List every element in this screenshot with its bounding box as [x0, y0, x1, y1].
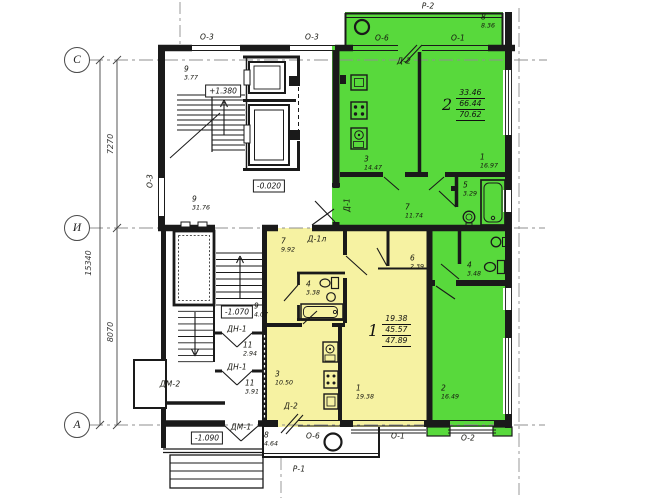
room-label-apt2-hall: 7 11.74	[405, 203, 423, 220]
room-label-lobby-2: 11 3.91	[245, 379, 259, 396]
room-label-apt1-balcony: 8 4.64	[264, 431, 278, 448]
room-label-apt1-hall: 7 9.92	[281, 237, 295, 254]
apartment-1-areas: 19.38 45.57 47.89	[382, 314, 410, 347]
room-label-apt2-balcony: 8 8.36	[481, 13, 495, 30]
room-label-apt1-closet: 6 2.39	[410, 254, 424, 271]
window-mark-o6-bottom: О-6	[306, 432, 320, 440]
floor-plan-drawing	[0, 0, 650, 500]
room-label-apt2-kitchen: 3 14.47	[364, 155, 382, 172]
window-mark-o1-top: О-1	[451, 34, 465, 42]
axis-row-c: С	[64, 47, 90, 73]
window-mark-o2-bottom: О-2	[461, 434, 475, 442]
window-mark-o1-bottom: О-1	[391, 432, 405, 440]
floor-plan: С И А 7270 15340 8070 О-3 О-3 О-3 Р-2 О-…	[0, 0, 650, 500]
room-label-lobby-1: 11 2.94	[243, 341, 257, 358]
apartment-fill-areas	[265, 12, 512, 436]
elevation-stair-landing: +1.380	[205, 85, 241, 98]
axis-row-a: А	[64, 412, 90, 438]
apartment-1-summary: 1 19.38 45.57 47.89	[368, 314, 411, 347]
balcony-mark-p1: Р-1	[293, 465, 306, 473]
dim-8070: 8070	[107, 322, 115, 342]
elevation-entrance: -1.090	[191, 432, 223, 445]
stairs-upper	[170, 92, 245, 158]
room-label-apt1-kitchen: 3 10.50	[275, 370, 293, 387]
room-label-apt1-bath: 4 3.38	[306, 280, 320, 297]
door-mark-dn1-b: ДН-1	[227, 363, 247, 371]
door-mark-d1l-yellow: Д-1л	[308, 235, 327, 243]
room-label-apt1-living: 1 19.38	[356, 384, 374, 401]
door-mark-dm2: ДМ-2	[160, 380, 181, 388]
window-mark-o6-top: О-6	[375, 34, 389, 42]
apartment-1-number: 1	[368, 321, 378, 340]
room-label-stair-lower: 9 4.07	[254, 302, 268, 319]
elevator-shaft	[243, 57, 300, 170]
door-mark-dm1: ДМ-1	[231, 423, 252, 431]
window-mark-o3-b: О-3	[305, 33, 319, 41]
elevation-lower-landing: -1.070	[221, 306, 253, 319]
window-mark-o3-left: О-3	[146, 174, 154, 188]
room-label-apt2-bedroom: 2 16.49	[441, 384, 459, 401]
axis-row-i: И	[64, 215, 90, 241]
door-mark-d1-green: Д-1	[343, 198, 351, 212]
dim-7270: 7270	[107, 134, 115, 154]
room-label-apt2-bath: 5 3.29	[463, 181, 477, 198]
apartment-2-number: 2	[442, 95, 452, 114]
dim-15340: 15340	[85, 250, 93, 275]
door-mark-dn1-a: ДН-1	[227, 325, 247, 333]
dimension-lines	[96, 56, 121, 429]
door-mark-d2-yellow: Д-2	[284, 402, 298, 410]
room-label-apt2-living: 1 16.97	[480, 153, 498, 170]
window-mark-o3-a: О-3	[200, 33, 214, 41]
door-mark-d2-green: Д-2	[397, 57, 411, 65]
elevation-ground: -0.020	[253, 180, 285, 193]
balcony-mark-p2: Р-2	[422, 2, 435, 10]
room-label-corridor: 9 31.76	[192, 195, 210, 212]
apartment-2-areas: 33.46 66.44 70.62	[456, 88, 484, 121]
apartment-2-summary: 2 33.46 66.44 70.62	[442, 88, 485, 121]
room-label-apt2-wc: 4 3.48	[467, 261, 481, 278]
room-label-stair-upper: 9 3.77	[184, 65, 198, 82]
